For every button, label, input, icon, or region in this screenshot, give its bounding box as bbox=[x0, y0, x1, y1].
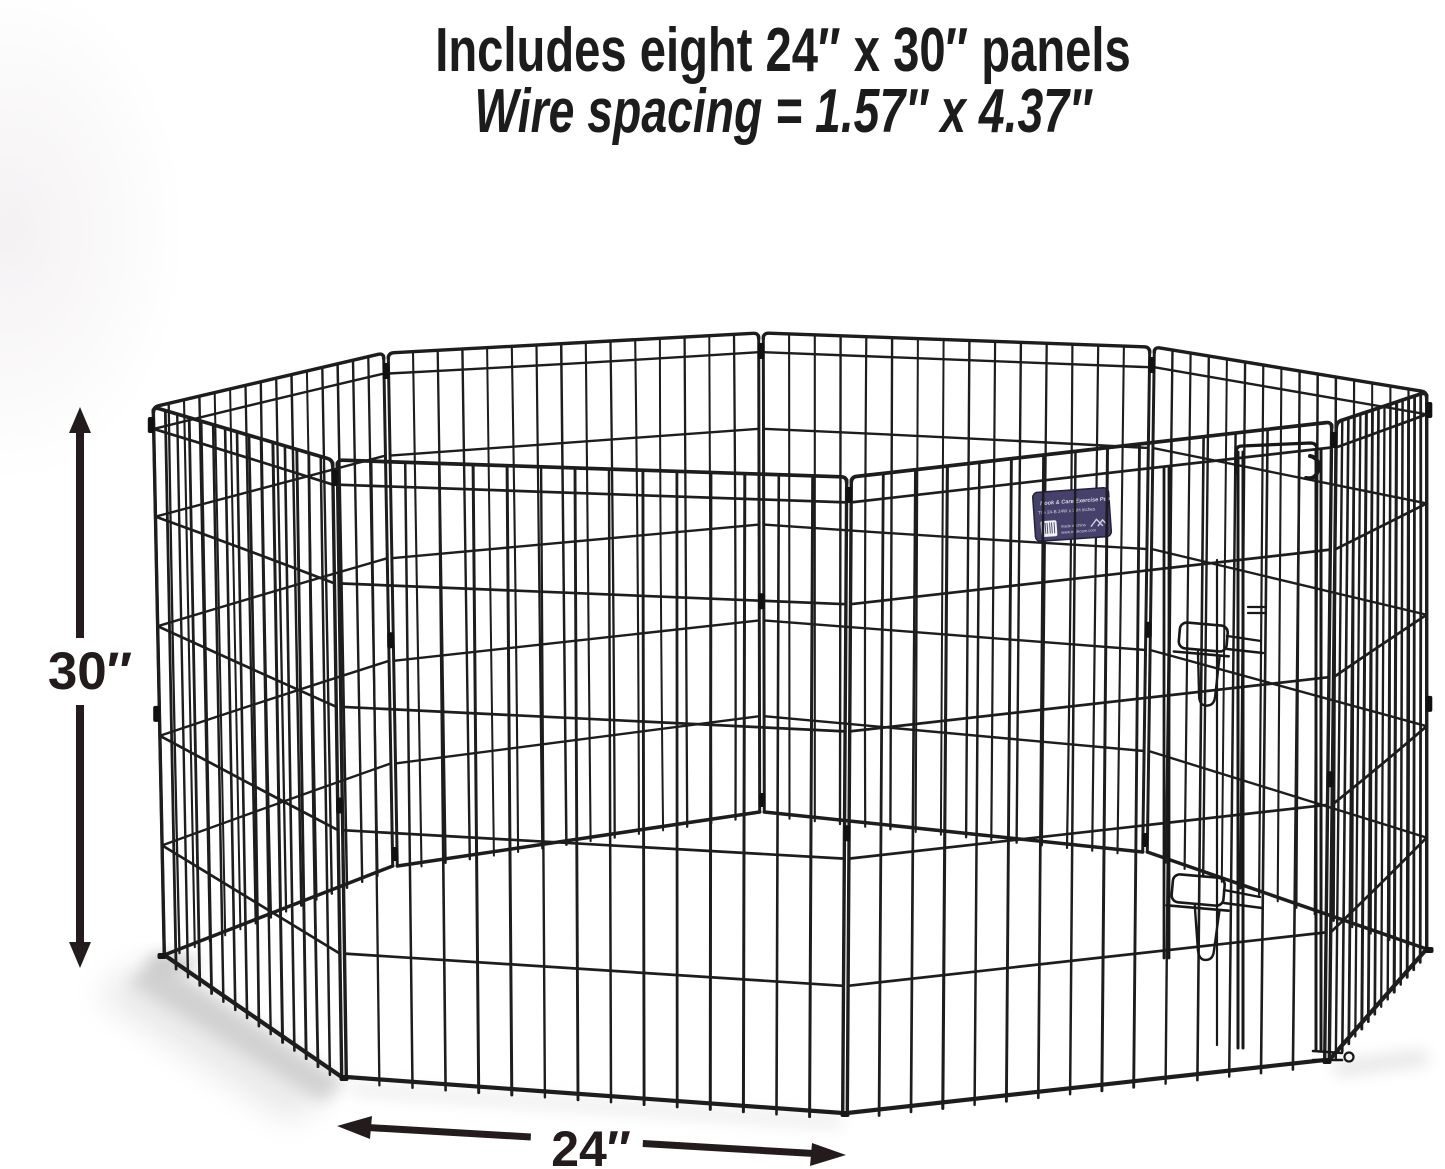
svg-text:24″: 24″ bbox=[551, 1121, 631, 1169]
svg-text:30″: 30″ bbox=[48, 642, 132, 701]
